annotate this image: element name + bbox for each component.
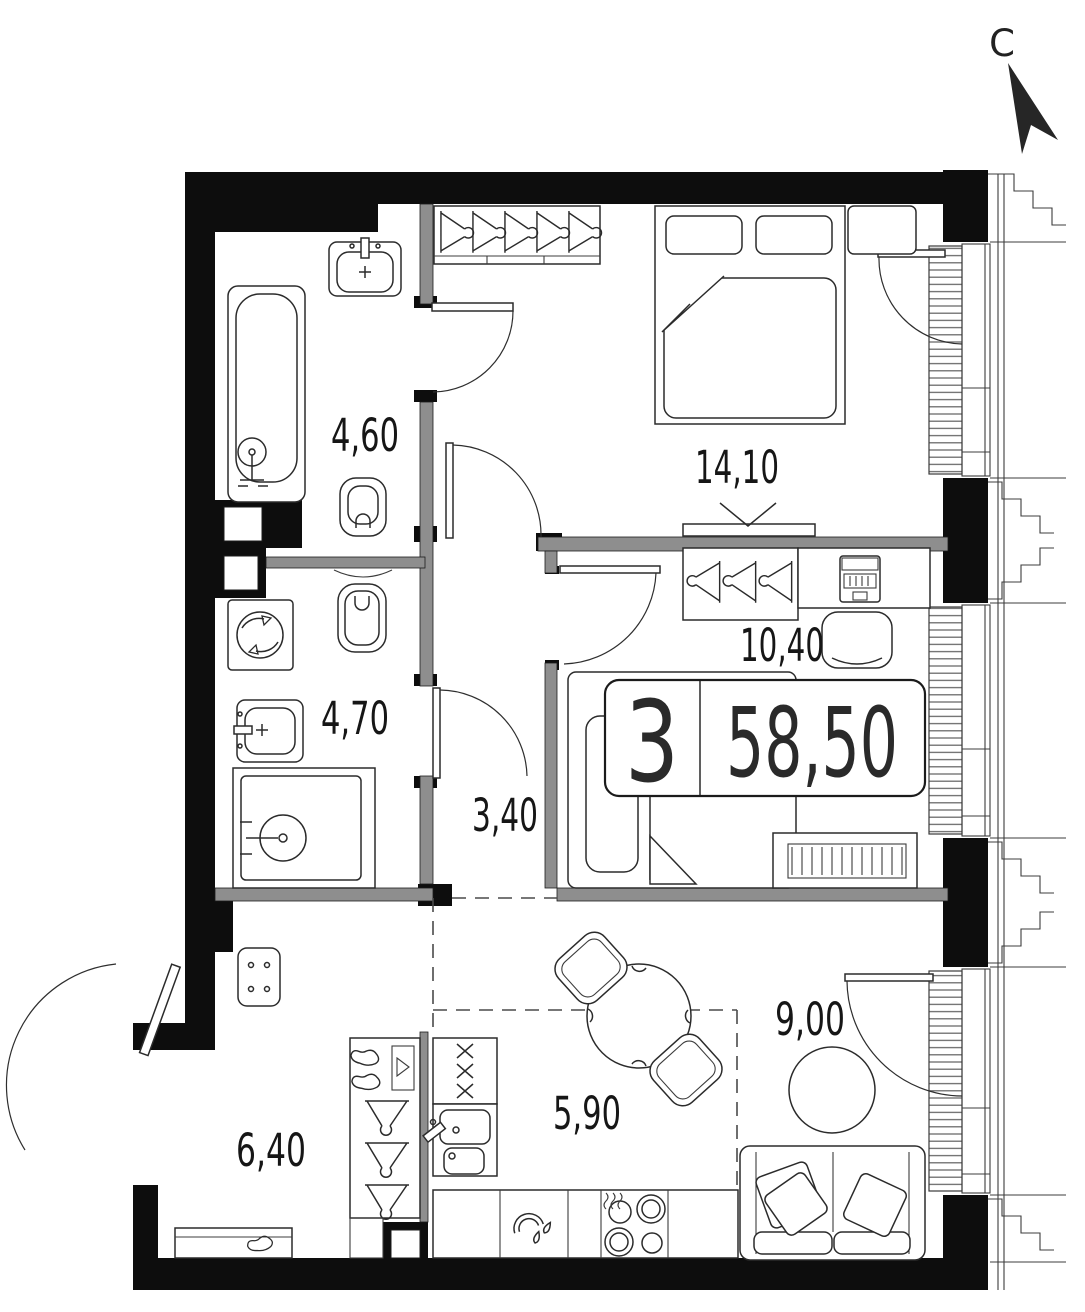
chair-icon [822, 612, 892, 668]
sink-icon [234, 700, 303, 762]
badge-rooms-count: 3 [625, 678, 679, 808]
floor-plan: 3 58,50 4,60 14,10 10,40 4,70 3,40 6,40 … [0, 0, 1085, 1312]
badge-total-area: 58,50 [726, 687, 898, 799]
wardrobe-icon [434, 206, 602, 264]
area-label-bathroom-bottom: 4,70 [321, 692, 389, 745]
area-label-bedroom: 14,10 [695, 441, 779, 494]
dresser-icon [773, 833, 917, 888]
bench-icon [175, 1228, 292, 1258]
sofa-icon [740, 1146, 925, 1260]
bathtub-icon [228, 286, 305, 502]
toilet-icon [338, 584, 386, 652]
laptop-icon [840, 556, 880, 602]
washing-machine-icon [228, 600, 293, 670]
kitchen-counter [433, 1190, 738, 1258]
desk-icon [798, 548, 930, 608]
area-label-kids-room: 10,40 [740, 619, 824, 672]
sink-icon [329, 238, 401, 296]
area-label-living: 9,00 [775, 993, 845, 1046]
stool-icon [238, 948, 280, 1006]
fridge-icon [433, 1038, 497, 1104]
toilet-icon [340, 478, 386, 536]
shower-icon [233, 768, 375, 888]
wardrobe-icon [683, 548, 798, 620]
floorplan-page: 3 58,50 4,60 14,10 10,40 4,70 3,40 6,40 … [0, 0, 1085, 1312]
area-label-kitchen: 5,90 [553, 1087, 621, 1140]
area-label-corridor: 3,40 [472, 789, 538, 842]
area-label-hallway: 6,40 [236, 1124, 306, 1177]
double-bed-icon [655, 206, 845, 424]
area-label-bathroom-top: 4,60 [331, 409, 399, 462]
area-badge: 3 58,50 [605, 678, 925, 808]
nightstand-icon [848, 206, 916, 254]
north-label: С [989, 22, 1015, 65]
kitchen-sink-icon [423, 1104, 497, 1176]
